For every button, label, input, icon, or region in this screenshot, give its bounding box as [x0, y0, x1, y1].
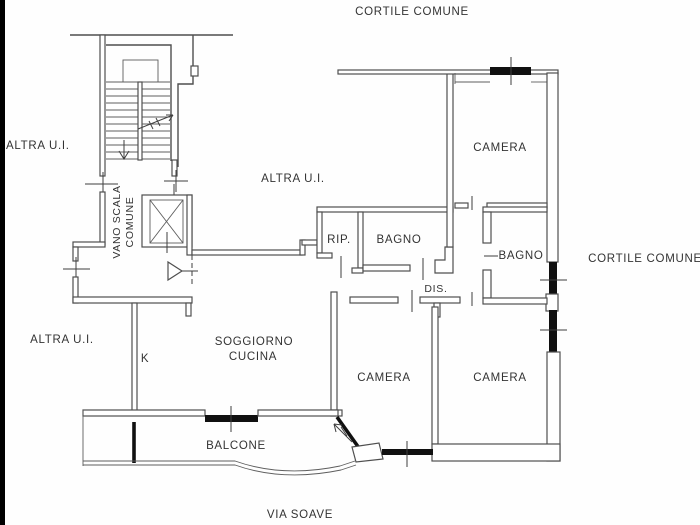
east-wall	[540, 73, 567, 461]
stair-down-arrow	[119, 140, 129, 159]
floor-plan-canvas: CORTILE COMUNE CORTILE COMUNE ALTRA U.I.…	[0, 0, 700, 525]
rip-bagno-walls	[317, 73, 453, 280]
room-label-soggiorno: SOGGIORNO	[215, 336, 294, 348]
room-label-camera-top: CAMERA	[473, 142, 526, 154]
door-pier	[352, 443, 383, 462]
room-label-bagno-2: BAGNO	[498, 250, 543, 262]
window-east-2	[549, 310, 557, 352]
elevator	[142, 195, 192, 253]
room-label-camera-mid: CAMERA	[357, 372, 410, 384]
room-label-rip: RIP.	[327, 234, 351, 246]
staircase	[100, 35, 198, 176]
area-label-altra-ui-top: ALTRA U.I.	[6, 140, 70, 152]
room-label-camera-right: CAMERA	[473, 372, 526, 384]
area-label-vano-scala: VANO SCALA	[111, 185, 123, 258]
room-label-bagno-1: BAGNO	[376, 234, 421, 246]
balcony-door-window	[334, 417, 433, 467]
area-label-cortile-comune-right: CORTILE COMUNE	[588, 253, 700, 265]
area-label-cortile-comune-top: CORTILE COMUNE	[355, 6, 469, 18]
room-label-dis: DIS.	[424, 283, 447, 295]
street-label-via-soave: VIA SOAVE	[267, 509, 333, 521]
area-label-vano-scala-2: COMUNE	[124, 197, 136, 248]
frame-right-bar	[0, 0, 5, 525]
room-label-cucina: CUCINA	[229, 351, 277, 363]
area-label-balcone: BALCONE	[206, 440, 266, 452]
room-label-k: K	[141, 353, 149, 365]
area-label-altra-ui-bottom: ALTRA U.I.	[30, 334, 94, 346]
area-label-altra-ui-mid: ALTRA U.I.	[261, 173, 325, 185]
corridor-walls	[192, 240, 317, 255]
floor-plan-drawing: CORTILE COMUNE CORTILE COMUNE ALTRA U.I.…	[0, 0, 700, 525]
balcony-door-diagonal	[337, 417, 359, 448]
